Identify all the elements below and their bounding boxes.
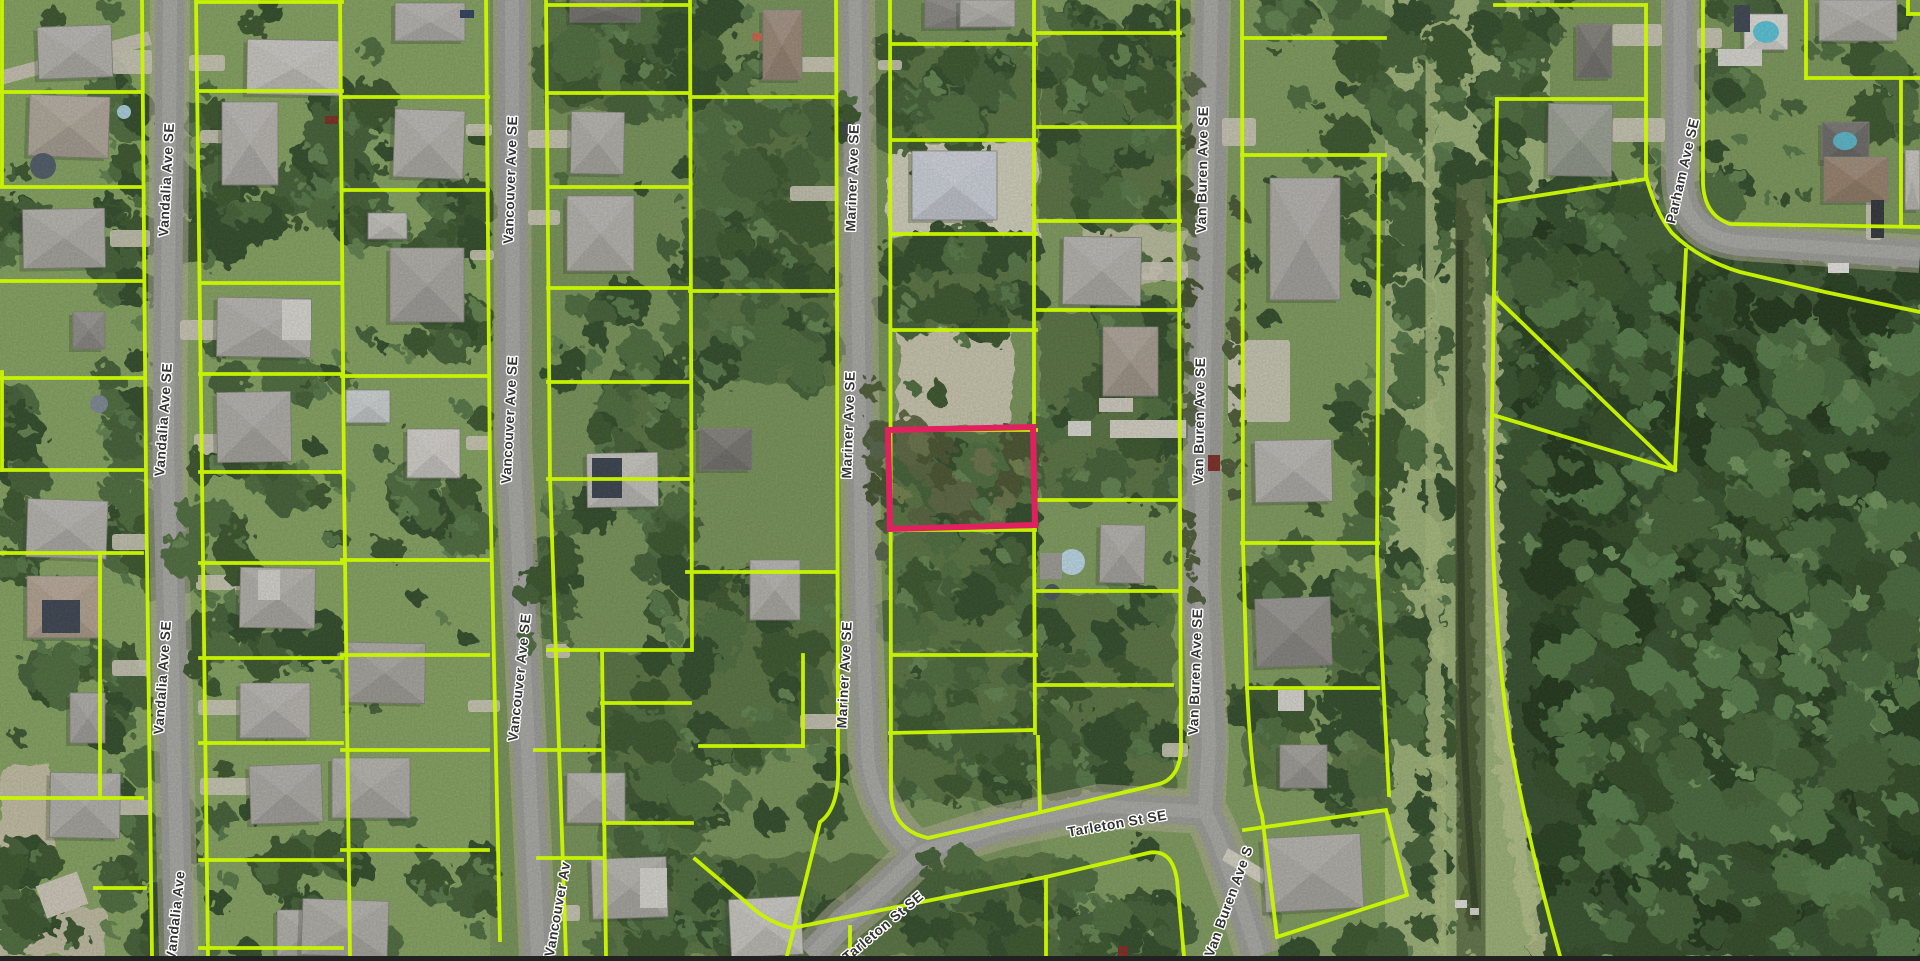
svg-text:Van Buren Ave SE: Van Buren Ave SE [1194,107,1211,234]
svg-text:Van Buren Ave SE: Van Buren Ave SE [1191,358,1208,485]
